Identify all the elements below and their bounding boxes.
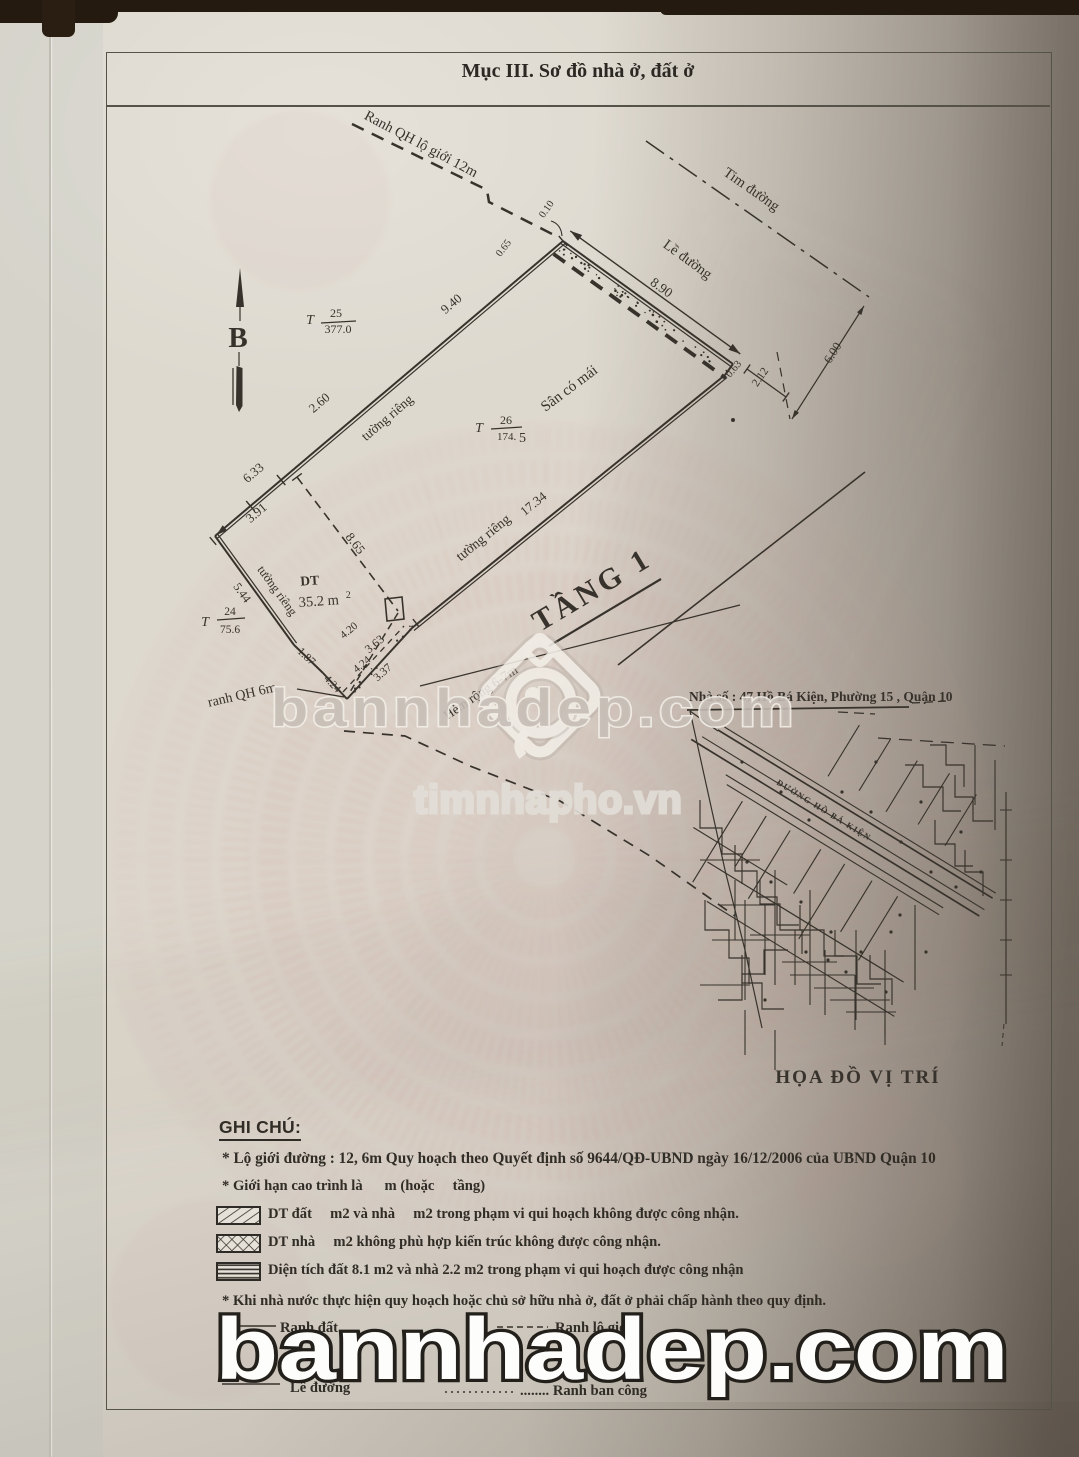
svg-text:bannhadep.com: bannhadep.com <box>215 1301 1009 1398</box>
